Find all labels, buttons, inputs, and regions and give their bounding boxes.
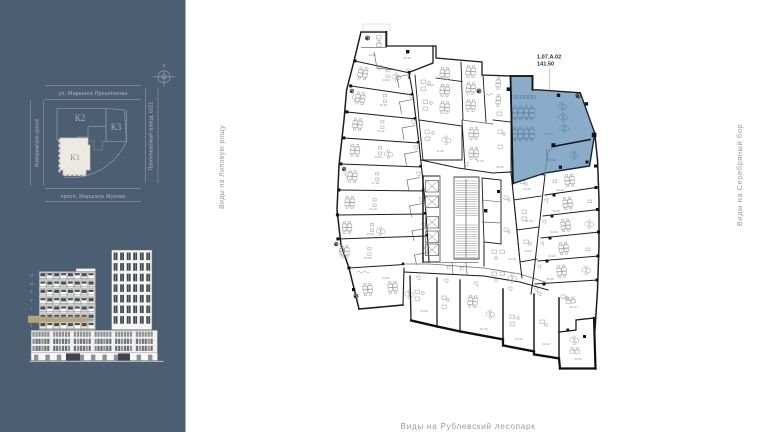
svg-text:23.90: 23.90	[382, 78, 390, 82]
svg-text:Виды на Серебряный бор: Виды на Серебряный бор	[735, 124, 744, 226]
svg-text:К3: К3	[111, 122, 122, 132]
svg-text:1: 1	[31, 357, 33, 361]
svg-text:Виды на Рублевский лесопарк: Виды на Рублевский лесопарк	[400, 422, 535, 431]
svg-text:24.10: 24.10	[369, 207, 377, 211]
svg-text:141.50: 141.50	[537, 62, 554, 68]
svg-text:27.90: 27.90	[515, 337, 523, 341]
svg-text:43.50: 43.50	[496, 165, 504, 169]
svg-text:40.10: 40.10	[556, 188, 564, 192]
svg-text:8: 8	[31, 299, 33, 303]
svg-text:19.80: 19.80	[524, 249, 532, 253]
svg-text:29.70: 29.70	[569, 305, 577, 309]
svg-text:ул. Маршала Прошлякова: ул. Маршала Прошлякова	[59, 91, 128, 97]
svg-text:97.00: 97.00	[545, 132, 553, 136]
svg-text:24.90: 24.90	[420, 309, 428, 313]
svg-text:9: 9	[31, 290, 33, 294]
svg-text:17.90: 17.90	[436, 149, 444, 153]
svg-text:22.10: 22.10	[542, 342, 550, 346]
svg-text:Виды на Липовую рощу: Виды на Липовую рощу	[219, 125, 226, 209]
svg-text:54.90: 54.90	[382, 276, 390, 280]
svg-text:30.80: 30.80	[546, 277, 554, 281]
svg-text:23.00: 23.00	[426, 83, 434, 87]
svg-text:21.60: 21.60	[523, 187, 531, 191]
svg-text:44.40: 44.40	[508, 257, 516, 261]
svg-text:23.50: 23.50	[367, 232, 375, 236]
svg-text:36.30: 36.30	[380, 103, 388, 107]
svg-text:23.50: 23.50	[374, 155, 382, 159]
svg-text:31.50: 31.50	[552, 209, 560, 213]
svg-text:4: 4	[31, 332, 33, 336]
svg-text:1.07.А.02: 1.07.А.02	[537, 55, 561, 61]
svg-text:10: 10	[30, 282, 34, 286]
svg-text:2: 2	[31, 348, 33, 352]
svg-text:7: 7	[31, 307, 33, 311]
svg-text:Проектируемый проезд. 6321: Проектируемый проезд. 6321	[148, 102, 155, 171]
svg-text:27.60: 27.60	[372, 181, 380, 185]
svg-text:6: 6	[31, 315, 33, 319]
svg-text:36.10: 36.10	[377, 129, 385, 133]
svg-text:40.60: 40.60	[574, 357, 582, 361]
svg-text:42.90: 42.90	[403, 56, 411, 60]
svg-text:51.90: 51.90	[480, 327, 488, 331]
svg-text:просп. Маршала Жукова: просп. Маршала Жукова	[61, 194, 126, 200]
svg-text:33.20: 33.20	[550, 230, 558, 234]
svg-text:21.40: 21.40	[476, 159, 484, 163]
svg-text:3: 3	[31, 340, 33, 344]
svg-text:24.90: 24.90	[364, 256, 372, 260]
svg-text:31.00: 31.00	[548, 254, 556, 258]
svg-text:К1: К1	[70, 152, 80, 162]
svg-text:К2: К2	[75, 113, 86, 123]
svg-text:Новорижское шоссе: Новорижское шоссе	[35, 119, 41, 168]
svg-text:21.60: 21.60	[525, 219, 533, 223]
svg-text:5: 5	[31, 323, 33, 327]
svg-text:11: 11	[30, 274, 34, 278]
